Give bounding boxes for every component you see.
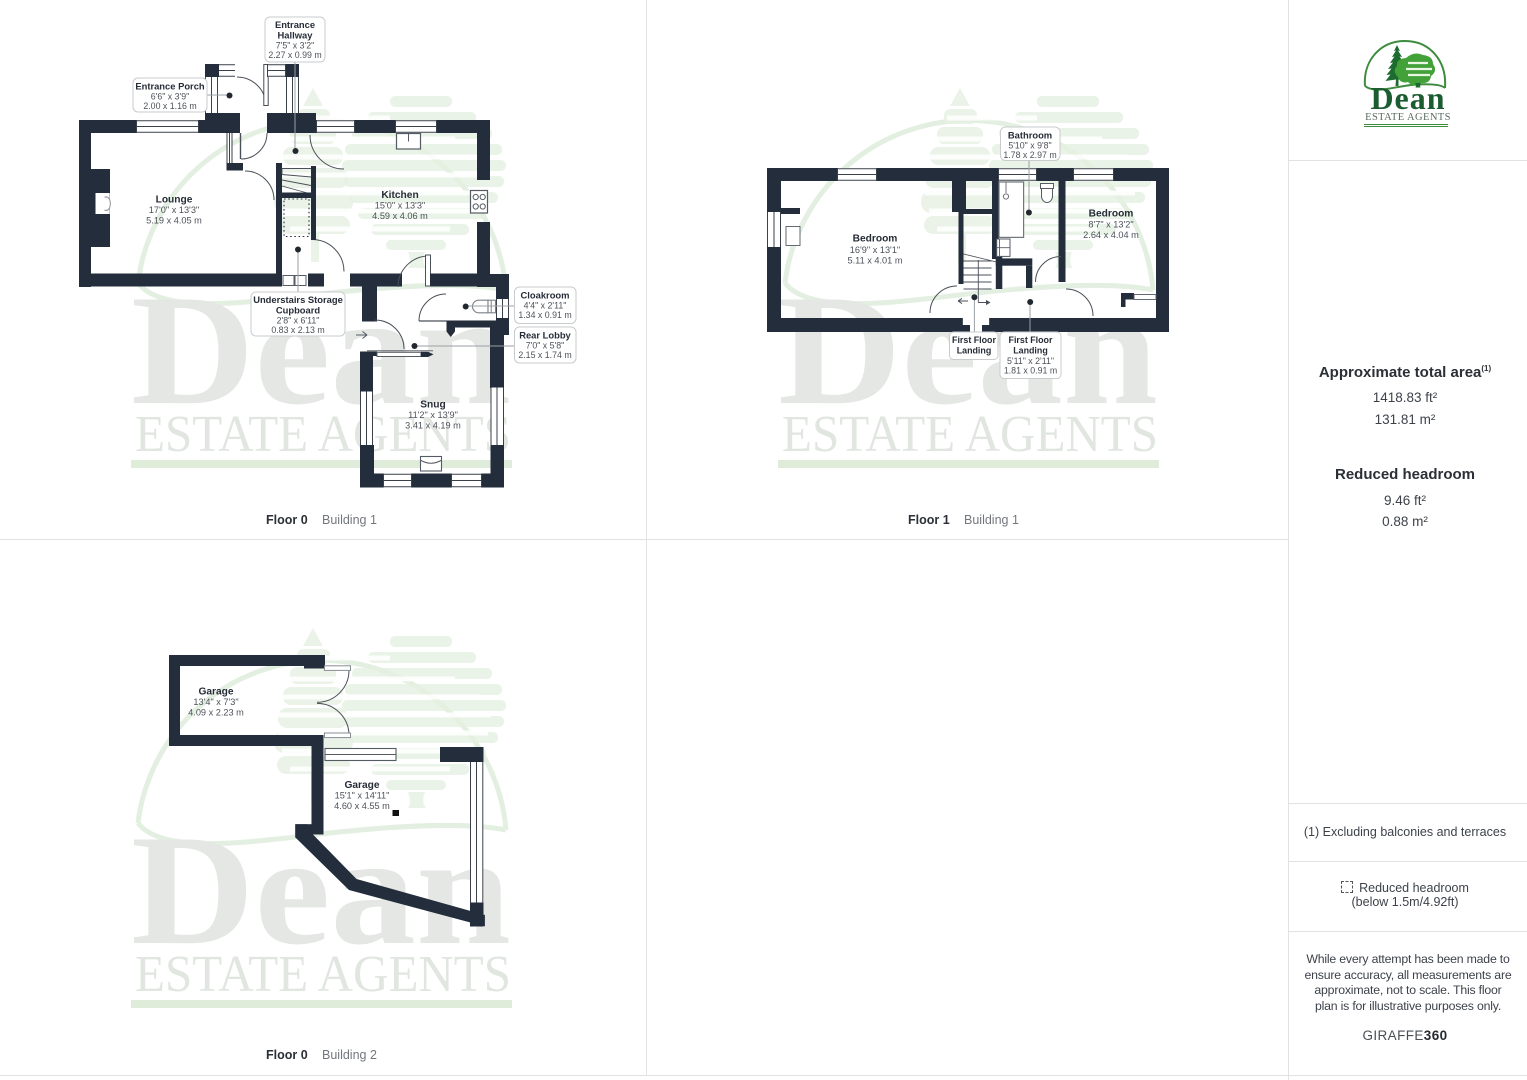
svg-text:2.00 x 1.16 m: 2.00 x 1.16 m (143, 101, 196, 111)
svg-text:Kitchen: Kitchen (381, 190, 418, 201)
svg-text:2'8" x 6'11": 2'8" x 6'11" (277, 316, 320, 326)
svg-text:7'5" x 3'2": 7'5" x 3'2" (276, 41, 314, 51)
svg-text:Building 1: Building 1 (322, 513, 377, 527)
svg-text:1.34 x 0.91 m: 1.34 x 0.91 m (518, 310, 571, 320)
svg-text:Garage: Garage (344, 780, 379, 791)
svg-text:Entrance: Entrance (275, 19, 315, 30)
svg-text:Bedroom: Bedroom (853, 234, 898, 245)
svg-text:15'0" x 13'3": 15'0" x 13'3" (375, 201, 425, 211)
svg-text:Landing: Landing (957, 346, 992, 356)
svg-text:Rear Lobby: Rear Lobby (519, 330, 571, 341)
svg-text:Lounge: Lounge (156, 195, 193, 206)
svg-text:Bathroom: Bathroom (1008, 130, 1052, 141)
svg-text:Floor 1: Floor 1 (908, 513, 950, 527)
svg-text:First Floor: First Floor (1009, 335, 1053, 345)
svg-text:8'7" x 13'2": 8'7" x 13'2" (1088, 220, 1133, 230)
svg-text:16'9" x 13'1": 16'9" x 13'1" (850, 245, 900, 255)
svg-text:Snug: Snug (420, 400, 445, 411)
svg-text:Garage: Garage (198, 687, 233, 698)
svg-text:3.41 x 4.19 m: 3.41 x 4.19 m (405, 421, 461, 431)
svg-text:4.59 x 4.06 m: 4.59 x 4.06 m (372, 211, 428, 221)
svg-text:13'4" x 7'3": 13'4" x 7'3" (193, 697, 238, 707)
svg-text:5.19 x 4.05 m: 5.19 x 4.05 m (146, 216, 202, 226)
svg-text:5'11" x 2'11": 5'11" x 2'11" (1007, 356, 1054, 366)
svg-text:4.09 x 2.23 m: 4.09 x 2.23 m (188, 708, 244, 718)
svg-text:17'0" x 13'3": 17'0" x 13'3" (149, 205, 199, 215)
svg-text:11'2" x 13'9": 11'2" x 13'9" (408, 410, 458, 420)
svg-text:Landing: Landing (1013, 346, 1048, 356)
svg-text:4'4" x 2'11": 4'4" x 2'11" (524, 301, 567, 311)
svg-text:Bedroom: Bedroom (1089, 209, 1134, 220)
svg-text:Floor 0: Floor 0 (266, 513, 308, 527)
svg-text:Floor 0: Floor 0 (266, 1048, 308, 1062)
svg-text:1.78 x 2.97 m: 1.78 x 2.97 m (1003, 150, 1056, 160)
svg-text:2.15 x 1.74 m: 2.15 x 1.74 m (518, 350, 571, 360)
svg-text:Hallway: Hallway (278, 30, 314, 41)
svg-text:15'1" x 14'11": 15'1" x 14'11" (335, 791, 390, 801)
svg-text:Cupboard: Cupboard (276, 305, 321, 316)
svg-text:Building 1: Building 1 (964, 513, 1019, 527)
svg-text:0.83 x 2.13 m: 0.83 x 2.13 m (271, 325, 324, 335)
svg-text:5'10" x 9'8": 5'10" x 9'8" (1008, 141, 1051, 151)
svg-text:Building 2: Building 2 (322, 1048, 377, 1062)
svg-text:First Floor: First Floor (952, 335, 996, 345)
svg-text:Understairs Storage: Understairs Storage (253, 294, 343, 305)
svg-text:2.27 x 0.99 m: 2.27 x 0.99 m (268, 50, 321, 60)
svg-text:4.60 x 4.55 m: 4.60 x 4.55 m (334, 801, 390, 811)
svg-text:6'6" x 3'9": 6'6" x 3'9" (151, 92, 189, 102)
svg-text:2.64 x 4.04 m: 2.64 x 4.04 m (1083, 230, 1139, 240)
svg-text:1.81 x 0.91 m: 1.81 x 0.91 m (1004, 366, 1057, 376)
svg-text:Entrance Porch: Entrance Porch (135, 81, 205, 92)
svg-text:7'0" x 5'8": 7'0" x 5'8" (526, 341, 564, 351)
svg-text:5.11 x 4.01 m: 5.11 x 4.01 m (848, 256, 903, 266)
svg-text:Cloakroom: Cloakroom (521, 290, 570, 301)
